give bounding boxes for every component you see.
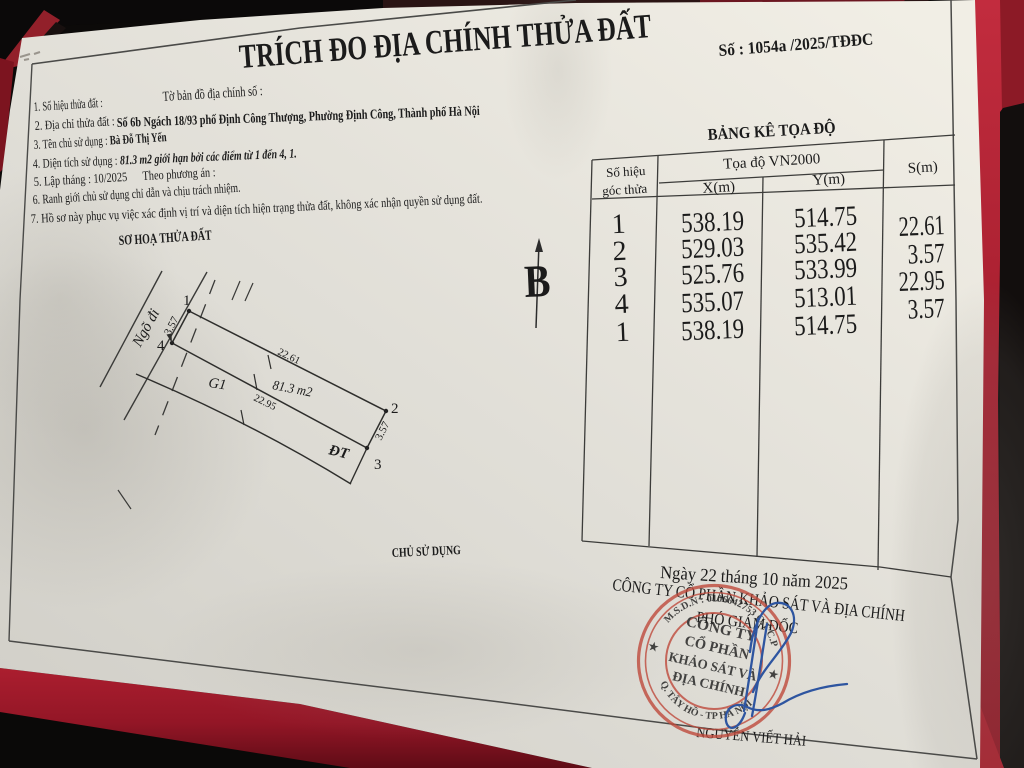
svg-text:Số hiệu: Số hiệu [606, 163, 647, 180]
svg-text:X(m): X(m) [702, 179, 735, 197]
svg-text:1: 1 [615, 317, 630, 349]
svg-text:4: 4 [614, 289, 629, 321]
svg-text:S(m): S(m) [907, 159, 938, 177]
svg-text:1: 1 [183, 293, 191, 309]
svg-text:3: 3 [374, 457, 382, 473]
svg-text:G1: G1 [207, 375, 227, 393]
svg-text:2: 2 [391, 401, 399, 417]
svg-text:538.19: 538.19 [680, 314, 744, 348]
svg-text:Y(m): Y(m) [812, 171, 845, 189]
svg-text:514.75: 514.75 [793, 309, 857, 343]
svg-text:B: B [523, 255, 551, 307]
svg-text:góc thửa: góc thửa [602, 181, 648, 199]
svg-text:4: 4 [157, 338, 165, 354]
svg-text:3.57: 3.57 [907, 293, 945, 326]
svg-text:CHỦ SỬ DỤNG: CHỦ SỬ DỤNG [391, 542, 461, 560]
